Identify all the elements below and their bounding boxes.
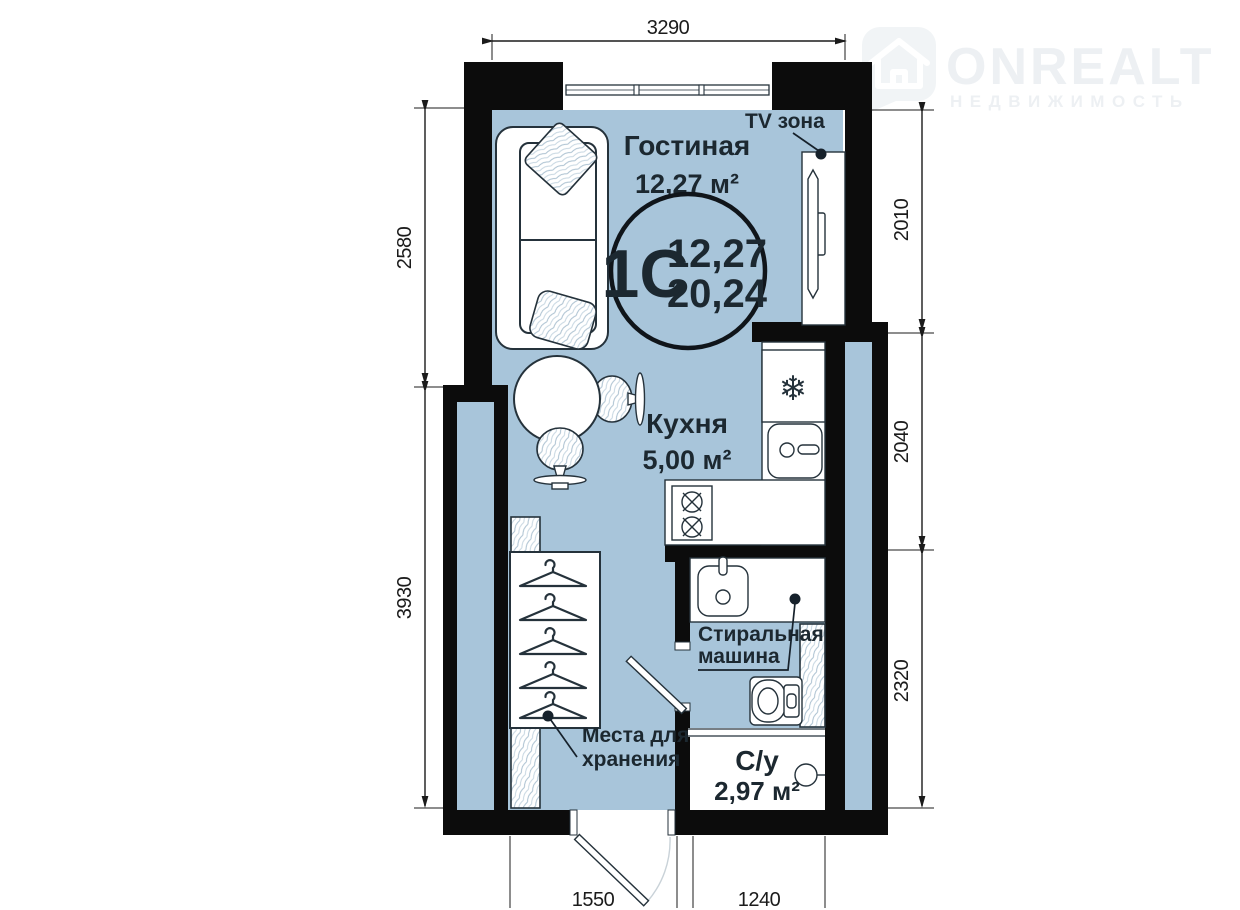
dimension-right-lower: 2320 <box>891 659 913 702</box>
dimension-left-upper: 2580 <box>394 226 416 269</box>
sofa <box>496 121 608 351</box>
floor-plan-page: ONREALT НЕДВИЖИМОСТЬ <box>0 0 1240 910</box>
dimension-right-upper: 2010 <box>891 198 913 241</box>
window <box>563 62 772 110</box>
living-room-label: Гостиная <box>624 130 751 161</box>
dimension-bottom-bath: 1240 <box>738 889 781 910</box>
onrealt-logo: ONREALT НЕДВИЖИМОСТЬ <box>862 27 1214 114</box>
hall-decor-hatch <box>511 728 540 808</box>
chair-base-notch <box>552 483 568 489</box>
unit-total-area: 20,24 <box>667 272 768 316</box>
washing-machine-label-1: Стиральная <box>698 623 824 646</box>
dimension-top: 3290 <box>647 17 690 39</box>
floor-plan-canvas: ONREALT НЕДВИЖИМОСТЬ <box>0 0 1240 910</box>
storage-label-2: хранения <box>582 748 680 771</box>
logo-brand-text: ONREALT <box>946 38 1214 96</box>
toilet <box>750 677 802 725</box>
kitchen-label: Кухня <box>646 408 728 439</box>
chair <box>537 428 583 470</box>
wardrobe <box>510 552 600 728</box>
kitchen-area: 5,00 м² <box>642 445 731 475</box>
right-shaft <box>845 342 872 810</box>
washing-machine-dot <box>790 594 801 605</box>
chair-base <box>636 373 645 425</box>
left-shaft <box>457 402 494 810</box>
kitchen-sink <box>768 424 822 478</box>
washbasin <box>698 557 748 616</box>
stove <box>672 486 712 540</box>
tv-screen <box>808 170 818 298</box>
dimension-bottom-door: 1550 <box>572 889 615 910</box>
tv-zone-label: TV зона <box>745 110 825 133</box>
storage-label-1: Места для <box>582 724 689 747</box>
bathroom-label: С/у <box>735 745 779 776</box>
bathroom-area: 2,97 м² <box>714 776 800 806</box>
dimension-left-lower: 3930 <box>394 576 416 619</box>
logo-subtitle-text: НЕДВИЖИМОСТЬ <box>950 92 1190 111</box>
shower-divider <box>688 728 825 737</box>
house-pin-icon <box>862 27 936 114</box>
unit-living-area: 12,27 <box>667 232 767 276</box>
snowflake-icon: ❄ <box>779 370 808 408</box>
dimension-right-middle: 2040 <box>891 420 913 463</box>
hall-decor-hatch <box>511 517 540 552</box>
tv-zone-dot <box>816 149 827 160</box>
tv-unit <box>802 152 845 325</box>
washing-machine-label-2: машина <box>698 645 780 668</box>
door-swing-arc <box>647 837 670 902</box>
